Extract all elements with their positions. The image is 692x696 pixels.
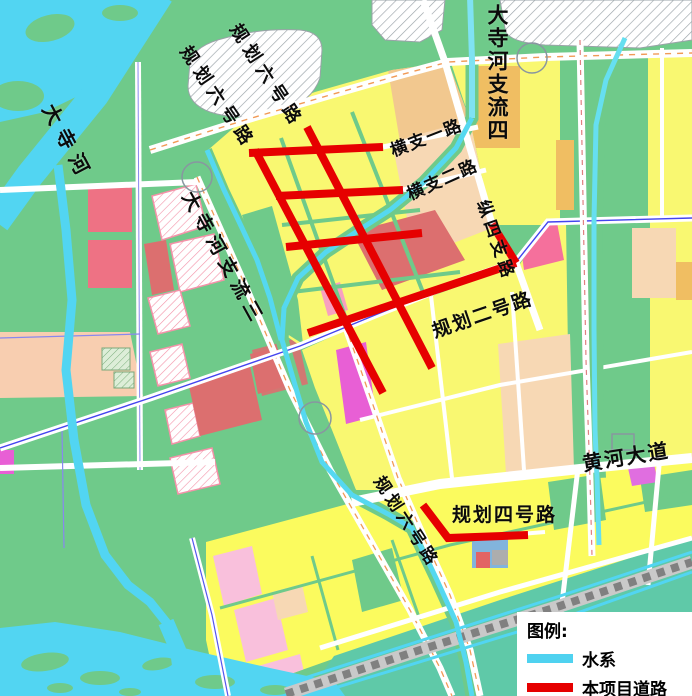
- legend: 图例: 水系 本项目道路: [517, 612, 692, 696]
- label-planned-road-4: 规划四号路: [452, 500, 557, 527]
- planning-map: 大寺河 规划六号路 规划六号路 大寺河支流四 横支一路 横支二路 纵四支路 规划…: [0, 0, 692, 696]
- label-dasi-tributary-4: 大寺河支流四: [482, 4, 512, 142]
- map-canvas: [0, 0, 692, 696]
- water-swatch: [527, 654, 573, 663]
- legend-title: 图例:: [527, 617, 692, 642]
- legend-item-project-road-label: 本项目道路: [582, 675, 667, 696]
- legend-item-water-label: 水系: [582, 646, 616, 671]
- project-road-swatch: [527, 683, 573, 692]
- legend-item-project-road: 本项目道路: [527, 675, 692, 696]
- legend-item-water: 水系: [527, 646, 692, 671]
